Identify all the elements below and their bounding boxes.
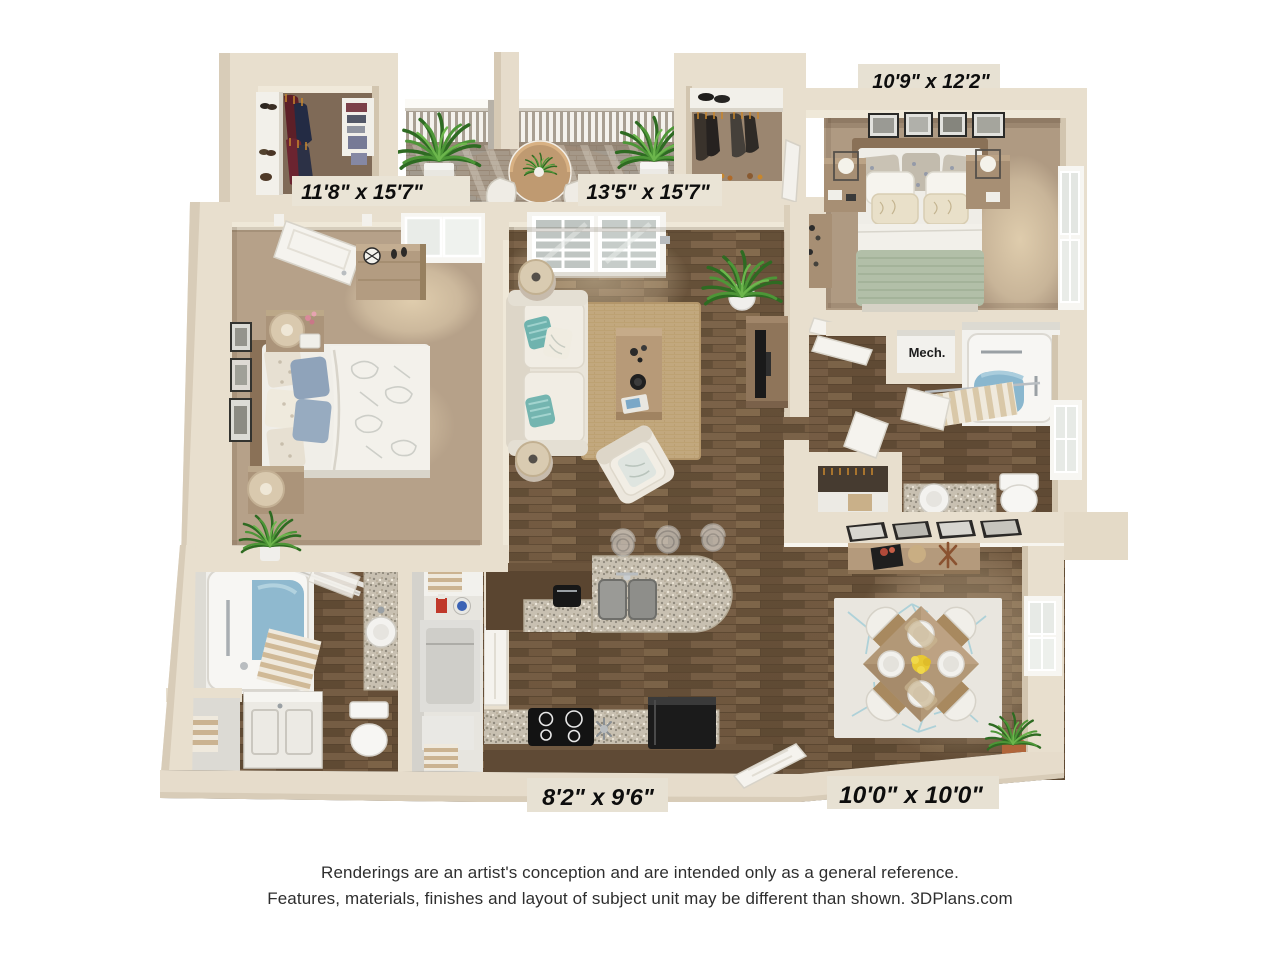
svg-text:11'8" x 15'7": 11'8" x 15'7" bbox=[301, 181, 424, 204]
svg-text:10'9" x 12'2": 10'9" x 12'2" bbox=[872, 71, 990, 93]
svg-text:Features, materials, finishes: Features, materials, finishes and layout… bbox=[267, 889, 1013, 908]
svg-text:Renderings are an artist's con: Renderings are an artist's conception an… bbox=[321, 863, 959, 882]
svg-text:8'2" x 9'6": 8'2" x 9'6" bbox=[542, 784, 655, 810]
svg-text:Mech.: Mech. bbox=[909, 345, 946, 360]
svg-text:13'5" x 15'7": 13'5" x 15'7" bbox=[586, 181, 710, 204]
svg-text:10'0" x 10'0": 10'0" x 10'0" bbox=[839, 782, 983, 809]
